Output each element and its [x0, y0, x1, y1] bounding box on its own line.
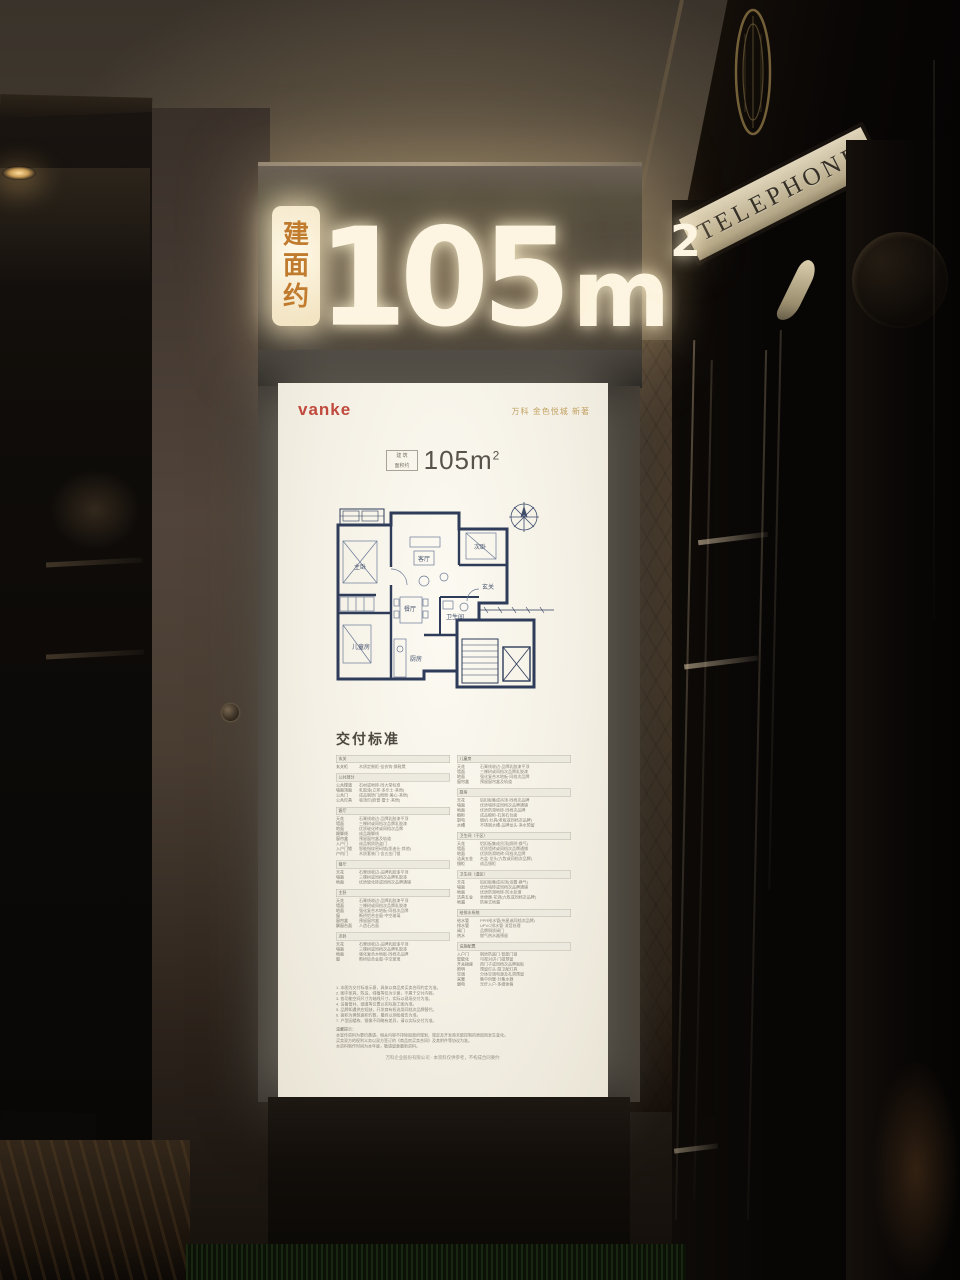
spec-section-title: 公共部分 — [336, 774, 450, 782]
spec-item-label: 窗 — [336, 957, 359, 962]
area-unit: m — [572, 253, 668, 338]
spec-item-desc: 预留窗帘盒及轨道 — [480, 780, 571, 785]
telephone-booth: TELEPHONE — [628, 0, 960, 1280]
crest-emblem-icon — [730, 4, 776, 144]
floor-plan: 主卧 客厅 次卧 餐厅 儿童房 厨房 卫生间 玄关 — [328, 489, 558, 694]
spec-section-title: 卫生间（干区） — [457, 832, 571, 840]
svg-text:卫生间: 卫生间 — [446, 613, 464, 621]
svg-text:次卧: 次卧 — [474, 543, 486, 551]
spec-section: 次卧天花石膏线收边·品牌乳胶漆平顶墙面三棵树或同档次品牌乳胶漆地面强化复合木地板… — [336, 933, 450, 963]
spec-section: 儿童房天花石膏线收边·品牌乳胶漆平顶墙面三棵树或同档次品牌乳胶漆地面强化复合木地… — [457, 755, 571, 785]
spec-row: 公共灯具吸顶灯(欧普·雷士·其他) — [336, 798, 450, 803]
note-line: 7. 户型因楼栋、镜像不同略有差异，请以实际交付为准。 — [336, 1018, 576, 1024]
spec-section-title: 卫生间（湿区） — [457, 871, 571, 879]
spec-section-title: 给排水系统 — [457, 909, 571, 917]
downlight-beam — [0, 168, 150, 288]
area-superscript: 2 — [670, 220, 701, 264]
spec-section: 餐厅天花石膏线收边·品牌乳胶漆平顶墙面三棵树或同档次品牌乳胶漆地面优质玻化砖或同… — [336, 861, 450, 886]
project-title: 万科 金色悦城 新著 — [512, 406, 590, 417]
spec-section-title: 主卧 — [336, 889, 450, 897]
spec-row: 玄关柜木质定制柜·挂衣钩·换鞋凳 — [336, 765, 450, 770]
spec-item-desc: 吸顶灯(欧普·雷士·其他) — [359, 798, 450, 803]
delivery-standard-title: 交付标准 — [336, 729, 400, 749]
area-prefix-tile: 建 面 约 — [272, 206, 320, 326]
spec-column-right: 儿童房天花石膏线收边·品牌乳胶漆平顶墙面三棵树或同档次品牌乳胶漆地面强化复合木地… — [457, 755, 571, 993]
spec-section: 公共部分公共楼道石材或地砖·同大堂标准墙面顶面乳胶漆(立邦·多乐士·其他)公共门… — [336, 774, 450, 804]
spec-row: 镜柜成品镜柜 — [457, 862, 571, 867]
area-label-box: 建 筑 面积约 — [386, 450, 418, 471]
spec-item-desc: 木质定制柜·挂衣钩·换鞋凳 — [359, 765, 450, 770]
spec-item-desc: 防臭式地漏 — [480, 900, 571, 905]
spec-section: 厨房天花铝扣板集成吊顶·同档次品牌墙面优质墙砖或同档次品牌通铺地面优质防滑地砖·… — [457, 789, 571, 829]
area-label-line: 面积约 — [392, 462, 411, 468]
spec-section: 卫生间（干区）天花铝扣板集成吊顶(照明·换气)墙面优质墙砖或同档次品牌通铺地面优… — [457, 832, 571, 867]
spec-row: 窗帘盒预留窗帘盒及轨道 — [457, 780, 571, 785]
spec-section-title: 玄关 — [336, 755, 450, 763]
spec-section-title: 餐厅 — [336, 861, 450, 869]
spec-item-desc: 成品镜柜 — [480, 862, 571, 867]
spec-row: 水槽不锈钢水槽·品牌龙头·净水预留 — [457, 823, 571, 828]
spec-row: 地面优质玻化砖或同档次品牌通铺 — [336, 880, 450, 885]
area-digits: 105 — [318, 217, 564, 342]
dark-shelf — [0, 1111, 96, 1144]
area-number-sign: 105 m 2 — [318, 178, 630, 338]
spec-item-label: 公共灯具 — [336, 798, 359, 803]
grass-mat — [186, 1244, 686, 1280]
showroom-scene: TELEPHONE 建 面 约 105 m 2 vanke 万科 金色悦城 新著 — [0, 0, 960, 1280]
spec-section: 给排水系统给水管PPR给水管(伟星或同档次品牌)排水管UPVC排水管·消音处理阀… — [457, 909, 571, 939]
spec-item-desc: 优质玻化砖或同档次品牌通铺 — [359, 880, 450, 885]
panel-seam-highlight — [933, 60, 935, 620]
prefix-char: 约 — [283, 284, 309, 310]
spec-item-label: 户内门 — [336, 852, 359, 857]
spec-section: 卫生间（湿区）天花铝扣板集成吊顶(浴霸·换气)墙面优质墙砖或同档次品牌通铺地面优… — [457, 871, 571, 906]
spec-item-label: 窗帘盒 — [457, 780, 480, 785]
spec-item-label: 地面 — [336, 880, 359, 885]
area-label-line: 建 筑 — [392, 453, 411, 459]
vanke-logo: vanke — [298, 400, 351, 420]
spec-item-desc: 人造石台面 — [359, 924, 450, 929]
spec-row: 窗断桥铝合金窗·中空玻璃 — [336, 957, 450, 962]
svg-text:客厅: 客厅 — [418, 555, 430, 563]
spec-column-left: 玄关玄关柜木质定制柜·挂衣钩·换鞋凳公共部分公共楼道石材或地砖·同大堂标准墙面顶… — [336, 755, 450, 993]
spec-row: 飘窗台面人造石台面 — [336, 924, 450, 929]
prefix-char: 建 — [283, 222, 309, 248]
wood-floor — [0, 1140, 190, 1280]
spec-section: 设施配置入户门钢质防盗门·智能门锁智能化可视对讲·门磁预留开关插座西门子或同档次… — [457, 943, 571, 988]
spec-item-label: 飘窗台面 — [336, 924, 359, 929]
spec-section-title: 设施配置 — [457, 943, 571, 951]
spec-section-title: 次卧 — [336, 933, 450, 941]
spec-item-label: 水槽 — [457, 823, 480, 828]
poster-lightbox: vanke 万科 金色悦城 新著 建 筑 面积约 105m2 — [278, 383, 608, 1097]
svg-text:主卧: 主卧 — [354, 563, 366, 571]
prefix-char: 面 — [283, 253, 309, 279]
spec-section-title: 儿童房 — [457, 755, 571, 763]
spec-item-label: 热水 — [457, 934, 480, 939]
svg-text:餐厅: 餐厅 — [404, 605, 416, 613]
wall-strip — [152, 108, 270, 1280]
spec-item-desc: 不锈钢水槽·品牌龙头·净水预留 — [480, 823, 571, 828]
floor-reflection — [872, 1060, 960, 1280]
spec-section: 主卧天花石膏线收边·品牌乳胶漆平顶墙面三棵树或同档次品牌乳胶漆地面强化复合木地板… — [336, 889, 450, 929]
ceiling-downlight — [2, 166, 36, 180]
wall-button — [222, 704, 239, 721]
svg-text:玄关: 玄关 — [482, 583, 494, 591]
svg-text:儿童房: 儿童房 — [352, 643, 370, 651]
svg-text:厨房: 厨房 — [410, 655, 422, 663]
area-row: 建 筑 面积约 105m2 — [278, 445, 608, 476]
spec-row: 热水燃气热水器预留 — [457, 934, 571, 939]
spec-row: 地漏防臭式地漏 — [457, 900, 571, 905]
spec-section-title: 客厅 — [336, 807, 450, 815]
spec-item-desc: 断桥铝合金窗·中空玻璃 — [359, 957, 450, 962]
spec-section: 玄关玄关柜木质定制柜·挂衣钩·换鞋凳 — [336, 755, 450, 770]
spec-row: 户内门木质套装门·含五金门锁 — [336, 852, 450, 857]
poster-footer: 万科企业股份有限公司 · 本资料仅供参考，不构成合同要约 — [278, 1047, 608, 1065]
spec-item-label: 玄关柜 — [336, 765, 359, 770]
shelf-niche-glow — [50, 470, 140, 550]
spec-item-label: 地漏 — [457, 900, 480, 905]
compass-icon — [509, 502, 539, 532]
spec-section: 客厅天花石膏线收边·品牌乳胶漆平顶墙面三棵树或同档次品牌乳胶漆地面优质玻化砖或同… — [336, 807, 450, 857]
spec-item-label: 镜柜 — [457, 862, 480, 867]
spec-item-desc: 燃气热水器预留 — [480, 934, 571, 939]
spec-item-desc: 木质套装门·含五金门锁 — [359, 852, 450, 857]
spec-section-title: 厨房 — [457, 789, 571, 797]
area-value: 105m2 — [424, 445, 501, 476]
